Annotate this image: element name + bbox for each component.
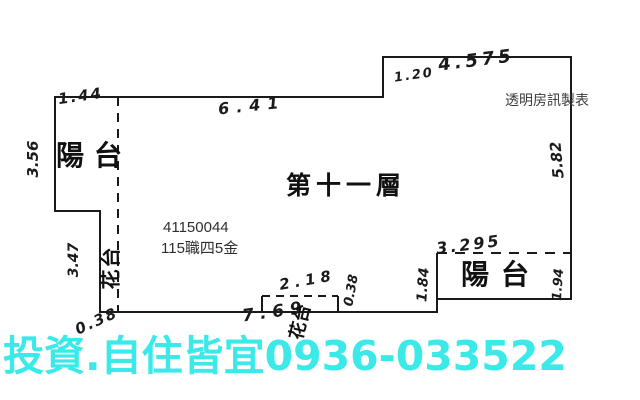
room-label-planter-left: 花台	[95, 235, 124, 301]
room-label-balcony-top-left: 陽台	[56, 134, 132, 174]
floorplan-page: 1.44 6.41 1.20 4.575 3.56 5.82 3.47 0.38…	[0, 0, 640, 400]
listing-id-code: 41150044	[163, 219, 229, 236]
maker-credit: 透明房訊製表	[505, 90, 589, 110]
ad-banner-text: 投資.自住皆宜0936-033522	[3, 334, 640, 379]
listing-id-label: 115職四5金	[161, 237, 238, 258]
dim-planter-left-height: 3.47	[66, 234, 82, 286]
floor-title: 第十一層	[286, 166, 406, 202]
dim-balcony-right-height: 1.94	[550, 254, 568, 301]
room-label-balcony-bottom-right: 陽台	[461, 253, 541, 293]
dim-left-height: 3.56	[24, 130, 42, 188]
